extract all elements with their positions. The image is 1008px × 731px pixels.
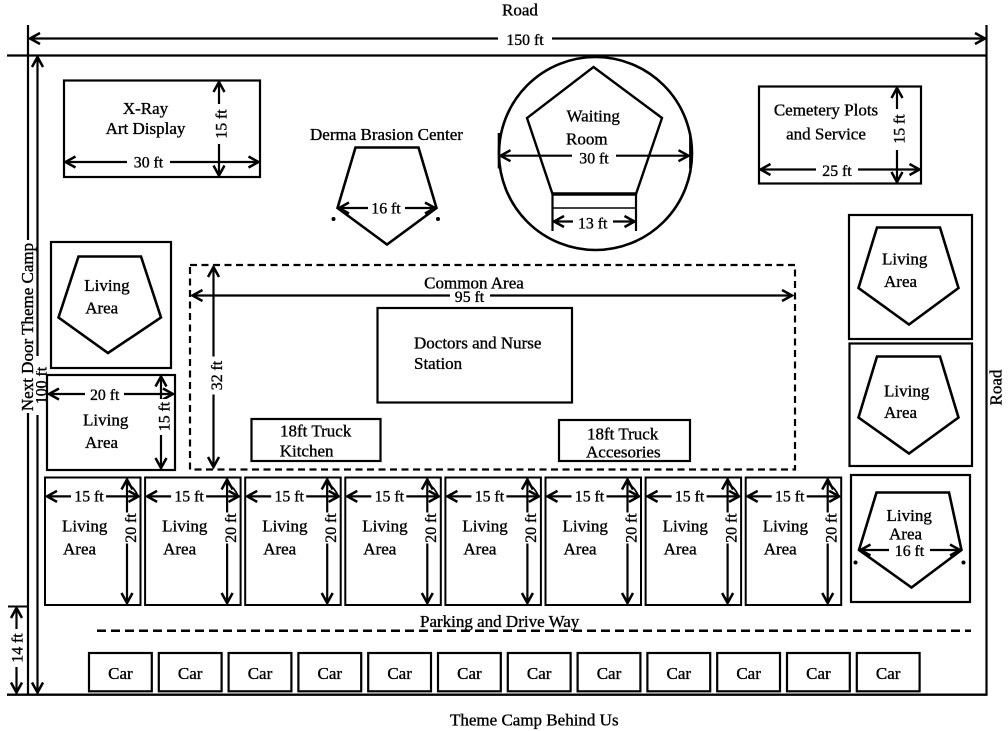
svg-text:20 ft: 20 ft [623,513,640,543]
svg-text:Living: Living [83,411,129,430]
svg-text:Waiting: Waiting [567,107,621,126]
svg-text:Area: Area [363,540,396,559]
svg-text:15 ft: 15 ft [575,488,605,505]
svg-text:Car: Car [178,664,203,683]
svg-text:150 ft: 150 ft [506,32,544,49]
svg-text:15 ft: 15 ft [475,488,505,505]
svg-text:Car: Car [387,664,412,683]
svg-text:15 ft: 15 ft [174,488,204,505]
svg-text:Car: Car [248,664,273,683]
svg-text:Doctors and Nurse: Doctors and Nurse [414,334,541,353]
svg-text:Living: Living [882,250,928,269]
svg-text:Living: Living [162,517,208,536]
svg-text:Road: Road [987,369,1006,405]
svg-text:Area: Area [463,540,496,559]
svg-text:Car: Car [457,664,482,683]
svg-text:Kitchen: Kitchen [280,441,334,460]
svg-text:Car: Car [736,664,761,683]
svg-text:Living: Living [887,506,933,525]
svg-text:15 ft: 15 ft [213,109,230,139]
svg-text:Living: Living [884,382,930,401]
svg-text:Living: Living [763,517,809,536]
svg-text:95 ft: 95 ft [455,289,485,306]
svg-text:X-Ray: X-Ray [123,99,169,118]
svg-text:18ft Truck: 18ft Truck [587,424,659,443]
svg-text:Area: Area [664,540,697,559]
svg-text:15 ft: 15 ft [891,114,908,144]
svg-text:Area: Area [85,299,118,318]
svg-text:25 ft: 25 ft [822,163,852,180]
svg-text:15 ft: 15 ft [375,488,405,505]
svg-text:30 ft: 30 ft [134,155,164,172]
svg-text:Car: Car [806,664,831,683]
svg-text:and Service: and Service [786,125,866,144]
svg-text:Living: Living [62,517,108,536]
svg-text:Art Display: Art Display [106,119,186,138]
svg-text:Accesories: Accesories [586,443,661,462]
svg-text:Area: Area [564,540,597,559]
svg-text:Theme Camp Behind Us: Theme Camp Behind Us [450,711,619,730]
svg-text:15 ft: 15 ft [74,488,104,505]
svg-text:Living: Living [362,517,408,536]
svg-text:Station: Station [414,354,463,373]
svg-text:Next Door Theme Camp: Next Door Theme Camp [18,243,37,411]
svg-text:20 ft: 20 ft [824,513,841,543]
svg-text:20 ft: 20 ft [723,513,740,543]
svg-text:Car: Car [876,664,901,683]
svg-text:20 ft: 20 ft [123,513,140,543]
svg-text:Area: Area [63,540,96,559]
svg-text:30 ft: 30 ft [579,151,609,168]
svg-text:32 ft: 32 ft [209,360,226,390]
svg-text:Living: Living [663,517,709,536]
svg-text:15 ft: 15 ft [675,488,705,505]
svg-text:Area: Area [764,540,797,559]
svg-text:Cemetery Plots: Cemetery Plots [774,101,878,120]
svg-text:18ft Truck: 18ft Truck [280,421,352,440]
svg-text:Derma Brasion Center: Derma Brasion Center [310,125,463,144]
svg-text:15 ft: 15 ft [156,401,173,431]
svg-text:Living: Living [563,517,609,536]
svg-text:16 ft: 16 ft [895,543,925,560]
svg-text:Area: Area [263,540,296,559]
svg-text:Car: Car [108,664,133,683]
svg-text:16 ft: 16 ft [371,201,401,218]
svg-text:Living: Living [84,276,130,295]
svg-text:Car: Car [667,664,692,683]
svg-text:Area: Area [85,433,118,452]
svg-text:20 ft: 20 ft [323,513,340,543]
svg-text:Car: Car [527,664,552,683]
svg-text:Area: Area [889,525,922,544]
svg-text:Area: Area [884,272,917,291]
svg-text:Living: Living [462,517,508,536]
svg-text:Area: Area [163,540,196,559]
svg-text:Living: Living [262,517,308,536]
svg-text:20 ft: 20 ft [90,387,120,404]
svg-text:15 ft: 15 ft [775,488,805,505]
svg-text:15 ft: 15 ft [274,488,304,505]
svg-text:20 ft: 20 ft [423,513,440,543]
svg-text:Road: Road [502,1,538,20]
svg-text:13 ft: 13 ft [578,216,608,233]
svg-text:Room: Room [566,130,608,149]
svg-text:14 ft: 14 ft [10,633,27,663]
svg-text:20 ft: 20 ft [223,513,240,543]
svg-text:Area: Area [884,403,917,422]
svg-text:20 ft: 20 ft [523,513,540,543]
svg-text:Parking and Drive Way: Parking and Drive Way [420,612,580,631]
svg-text:Car: Car [318,664,343,683]
svg-text:Car: Car [597,664,622,683]
